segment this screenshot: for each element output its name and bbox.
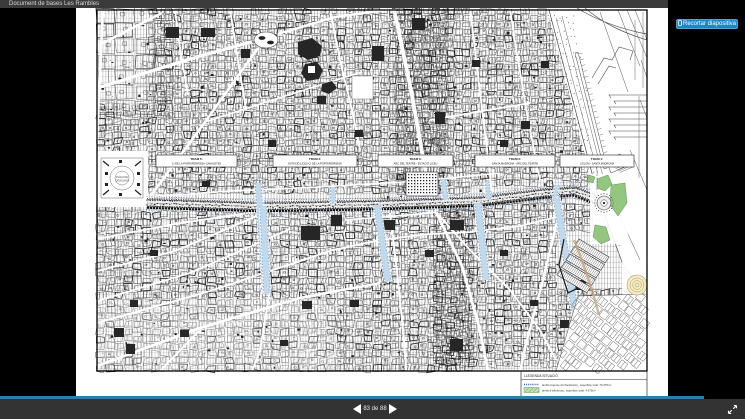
svg-text:TRAM 3:: TRAM 3: bbox=[409, 157, 421, 161]
svg-text:TRAM 5:: TRAM 5: bbox=[190, 157, 202, 161]
svg-text:TRAM 4:: TRAM 4: bbox=[309, 157, 321, 161]
svg-text:LLEGENDA SITUACIÓ: LLEGENDA SITUACIÓ bbox=[524, 373, 558, 378]
svg-text:COLOM - SANTA MADRONA: COLOM - SANTA MADRONA bbox=[580, 162, 614, 166]
svg-text:SANTA MADRONA - ARC DEL TEATRE: SANTA MADRONA - ARC DEL TEATRE bbox=[492, 162, 538, 166]
svg-text:C/ DE LA PORTAFERRISSA-CANALET: C/ DE LA PORTAFERRISSA-CANALETES bbox=[172, 162, 222, 166]
svg-text:CATALUNYA: CATALUNYA bbox=[115, 180, 129, 183]
svg-text:TRAM 1:: TRAM 1: bbox=[591, 157, 603, 161]
svg-text:TRAM 2:: TRAM 2: bbox=[509, 157, 521, 161]
svg-text:àmbit projecte d'urbanització_: àmbit projecte d'urbanització_ superfici… bbox=[542, 383, 611, 387]
svg-text:àmbit d'influència_ superficie: àmbit d'influència_ superficie total: 4.… bbox=[542, 389, 596, 393]
